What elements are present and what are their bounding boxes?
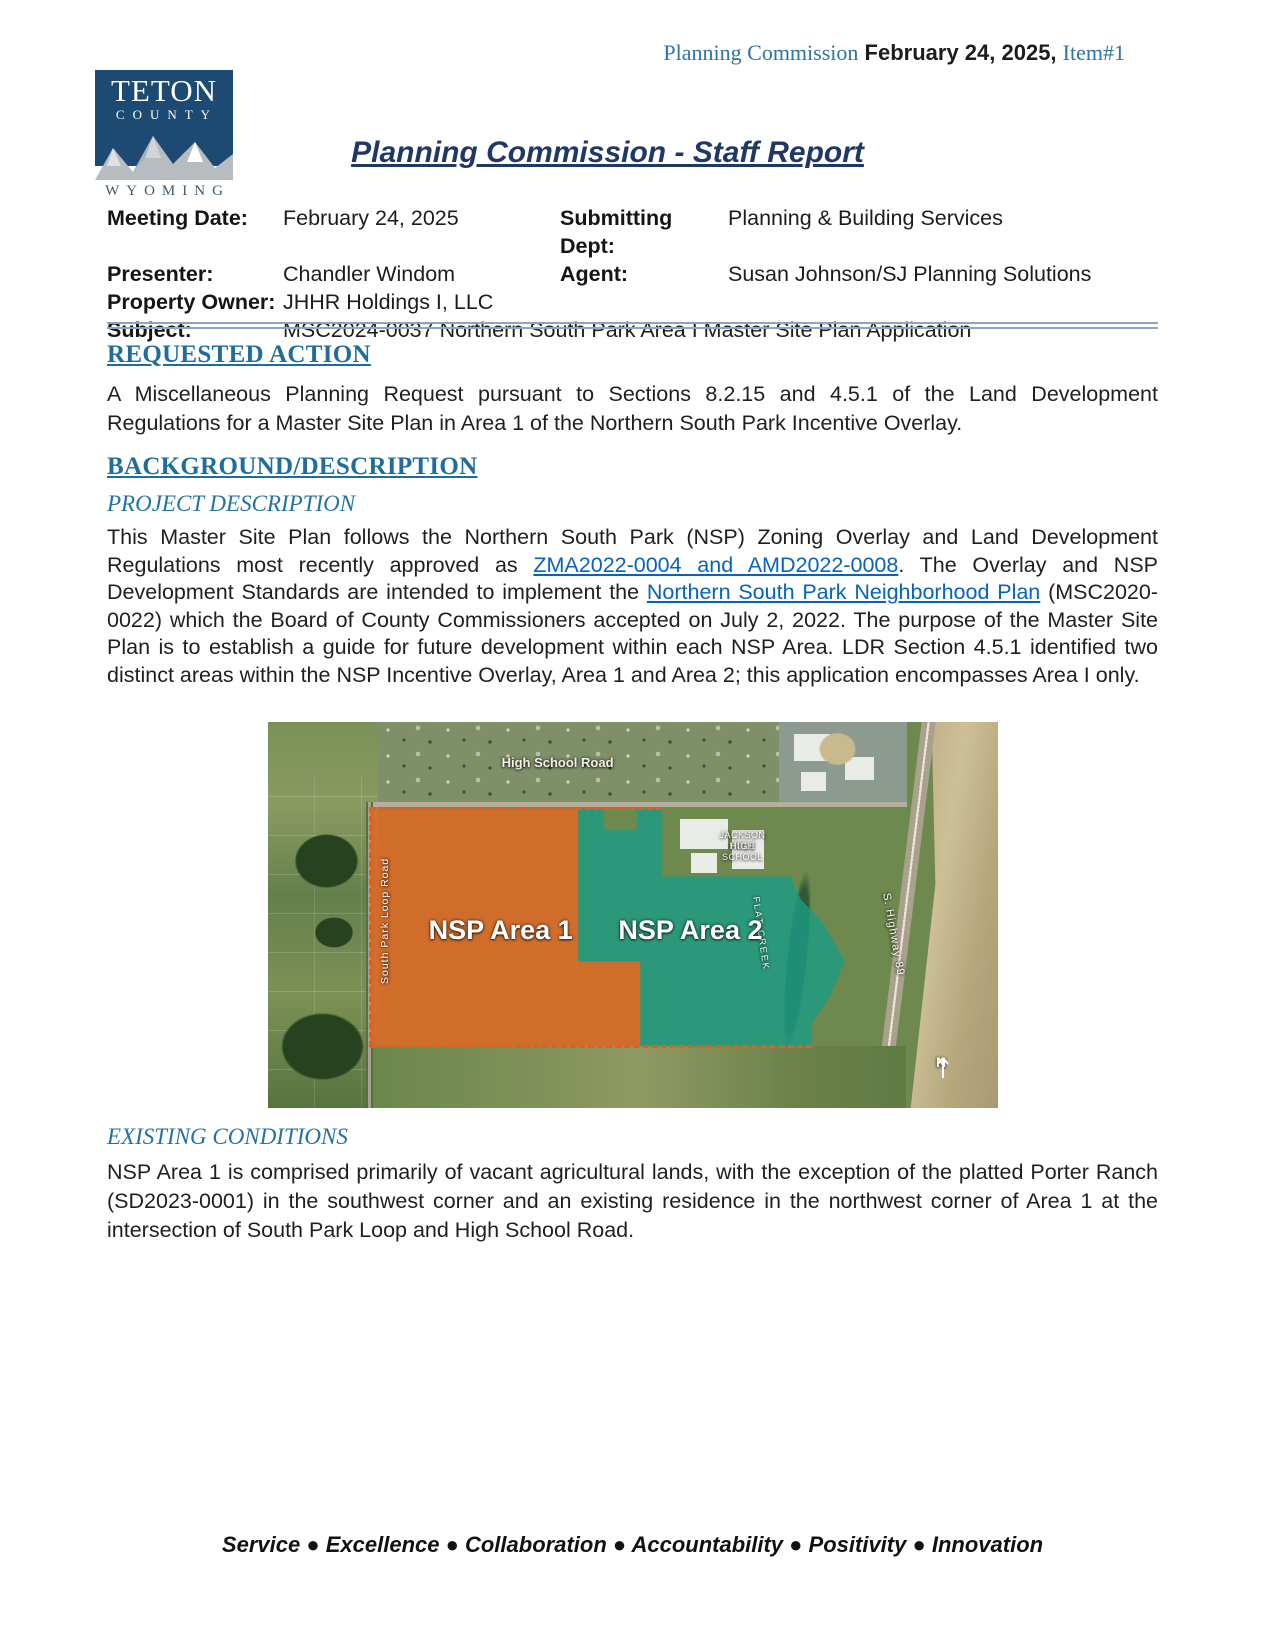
map-building <box>801 772 827 791</box>
property-owner-label: Property Owner: <box>107 288 283 316</box>
high-school-road-label: High School Road <box>502 755 614 770</box>
zma-amd-link[interactable]: ZMA2022-0004 and AMD2022-0008 <box>533 553 898 577</box>
presenter-value: Chandler Windom <box>283 260 560 288</box>
requested-action-body: A Miscellaneous Planning Request pursuan… <box>107 380 1158 438</box>
logo-wyoming-text: WYOMING <box>100 183 235 200</box>
aerial-map: High School Road South Park Loop Road JA… <box>268 722 998 1108</box>
map-pond <box>290 830 363 892</box>
meeting-date-label: Meeting Date: <box>107 204 283 260</box>
map-high-school-road-line <box>367 802 907 807</box>
property-owner-value: JHHR Holdings I, LLC <box>283 288 1162 316</box>
teton-county-logo: TETON COUNTY WYOMING <box>95 70 235 200</box>
map-school-building <box>691 853 717 872</box>
logo-county-text: COUNTY <box>101 107 233 123</box>
requested-action-heading: REQUESTED ACTION <box>107 341 371 369</box>
submitting-dept-value: Planning & Building Services <box>728 204 1162 260</box>
submitting-dept-label: Submitting Dept: <box>560 204 728 260</box>
page-header: Planning Commission February 24, 2025, I… <box>663 40 1125 66</box>
existing-conditions-heading: EXISTING CONDITIONS <box>107 1124 348 1150</box>
north-arrow-icon <box>936 1054 950 1080</box>
meta-row-2: Presenter: Chandler Windom Agent: Susan … <box>107 260 1162 288</box>
logo-teton-text: TETON <box>95 70 233 107</box>
map-ballfield <box>816 730 860 769</box>
map-fields-south <box>373 1046 906 1108</box>
project-description-heading: PROJECT DESCRIPTION <box>107 491 355 517</box>
boundary-dash-top <box>370 807 662 810</box>
map-marsh <box>275 1008 370 1085</box>
footer-motto: Service ● Excellence ● Collaboration ● A… <box>0 1532 1265 1558</box>
page-header-item: Item#1 <box>1063 40 1125 65</box>
background-description-heading: BACKGROUND/DESCRIPTION <box>107 453 478 481</box>
agent-label: Agent: <box>560 260 728 288</box>
meta-row-3: Property Owner: JHHR Holdings I, LLC <box>107 288 1162 316</box>
school-label-line2: HIGH SCHOOL <box>717 841 768 863</box>
page-header-date: February 24, 2025, <box>865 40 1057 65</box>
nsp-area1-label: NSP Area 1 <box>429 915 573 946</box>
subject-label: Subject: <box>107 316 283 344</box>
agent-value: Susan Johnson/SJ Planning Solutions <box>728 260 1162 288</box>
south-park-loop-road-label: South Park Loop Road <box>379 858 391 984</box>
meeting-date-value: February 24, 2025 <box>283 204 560 260</box>
map-pond-small <box>312 915 356 950</box>
meta-row-4: Subject: MSC2024-0037 Northern South Par… <box>107 316 1162 344</box>
document-title: Planning Commission - Staff Report <box>0 136 1215 170</box>
project-description-body: This Master Site Plan follows the Northe… <box>107 524 1158 689</box>
boundary-dash-left <box>369 807 372 1046</box>
neighborhood-plan-link[interactable]: Northern South Park Neighborhood Plan <box>647 580 1040 604</box>
existing-conditions-body: NSP Area 1 is comprised primarily of vac… <box>107 1158 1158 1245</box>
subject-value: MSC2024-0037 Northern South Park Area I … <box>283 316 1162 344</box>
double-rule-divider <box>107 322 1158 329</box>
boundary-dash-bottom <box>370 1045 812 1048</box>
presenter-label: Presenter: <box>107 260 283 288</box>
nsp-area2-label: NSP Area 2 <box>618 915 762 946</box>
meta-row-1: Meeting Date: February 24, 2025 Submitti… <box>107 204 1162 260</box>
jackson-hole-high-school-label: JACKSON HOLE HIGH SCHOOL <box>666 830 768 841</box>
page-header-commission: Planning Commission <box>663 40 858 65</box>
